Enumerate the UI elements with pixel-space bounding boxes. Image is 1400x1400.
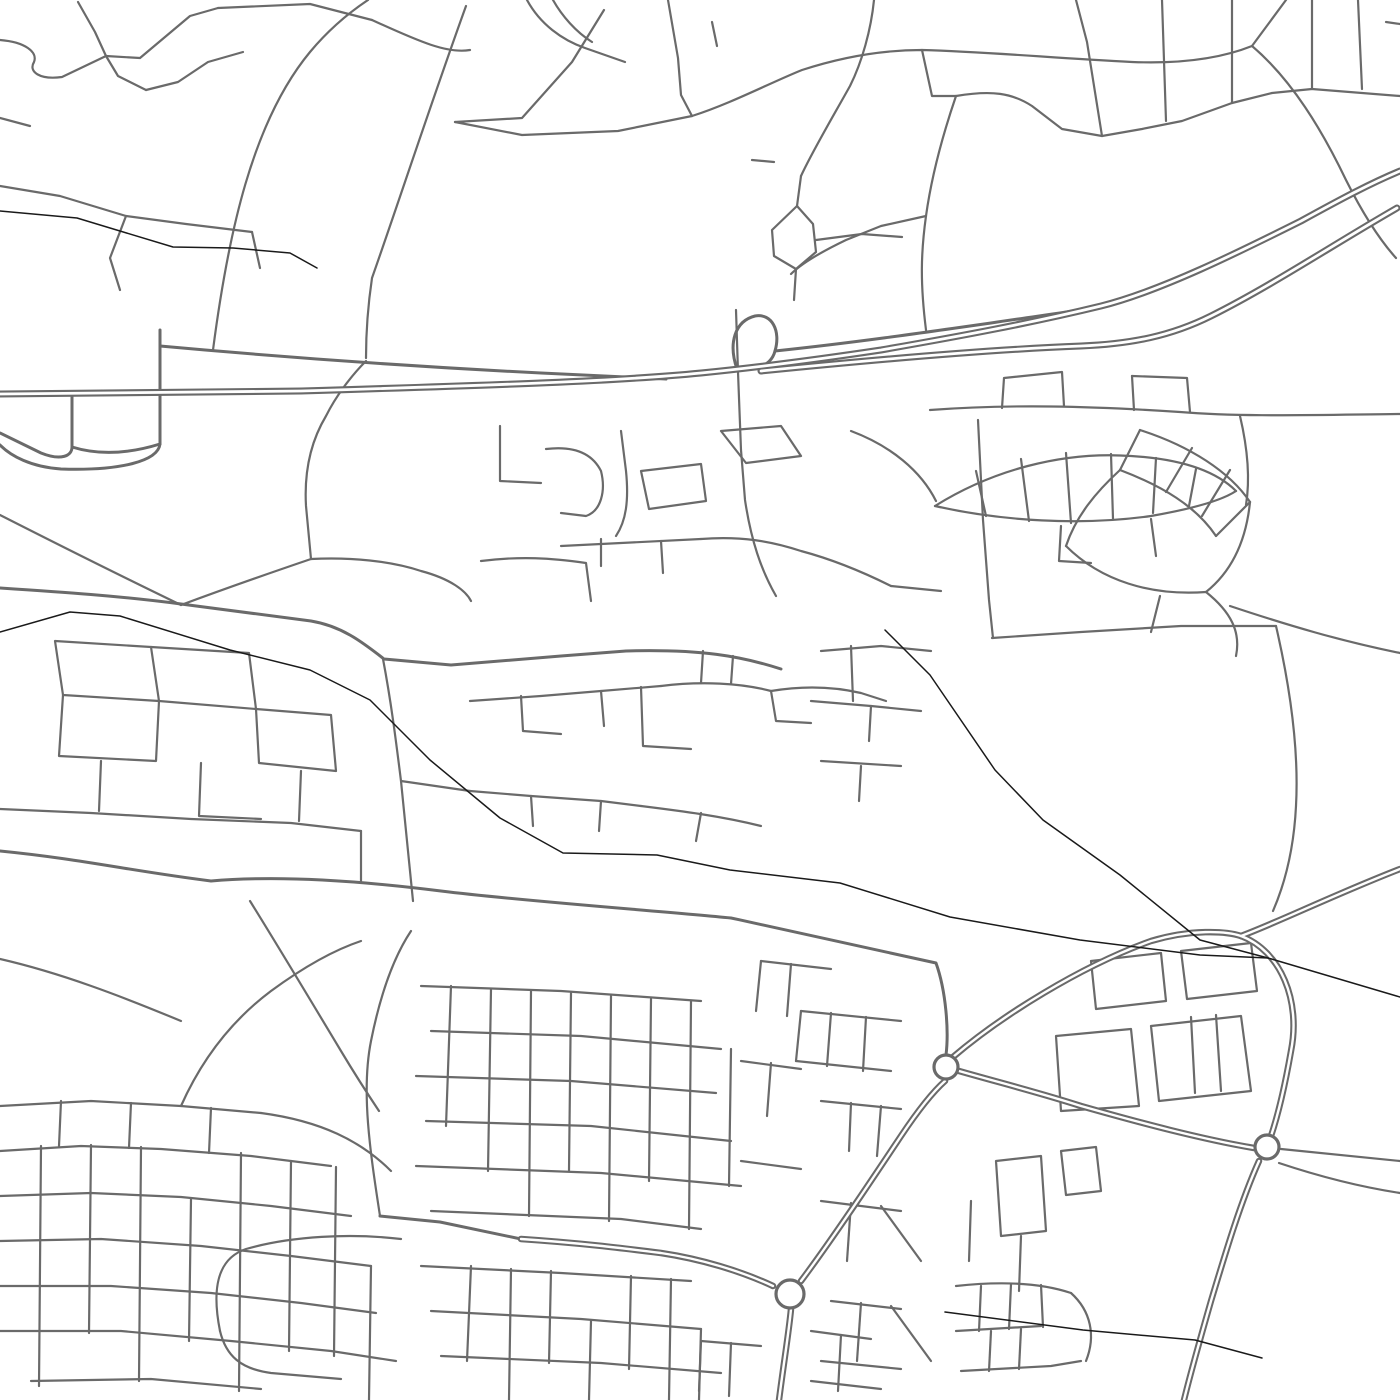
map-background bbox=[0, 0, 1400, 1400]
roundabout bbox=[1255, 1135, 1279, 1159]
roundabout bbox=[776, 1280, 804, 1308]
map-viewport[interactable] bbox=[0, 0, 1400, 1400]
street-map bbox=[0, 0, 1400, 1400]
roundabout bbox=[934, 1055, 958, 1079]
